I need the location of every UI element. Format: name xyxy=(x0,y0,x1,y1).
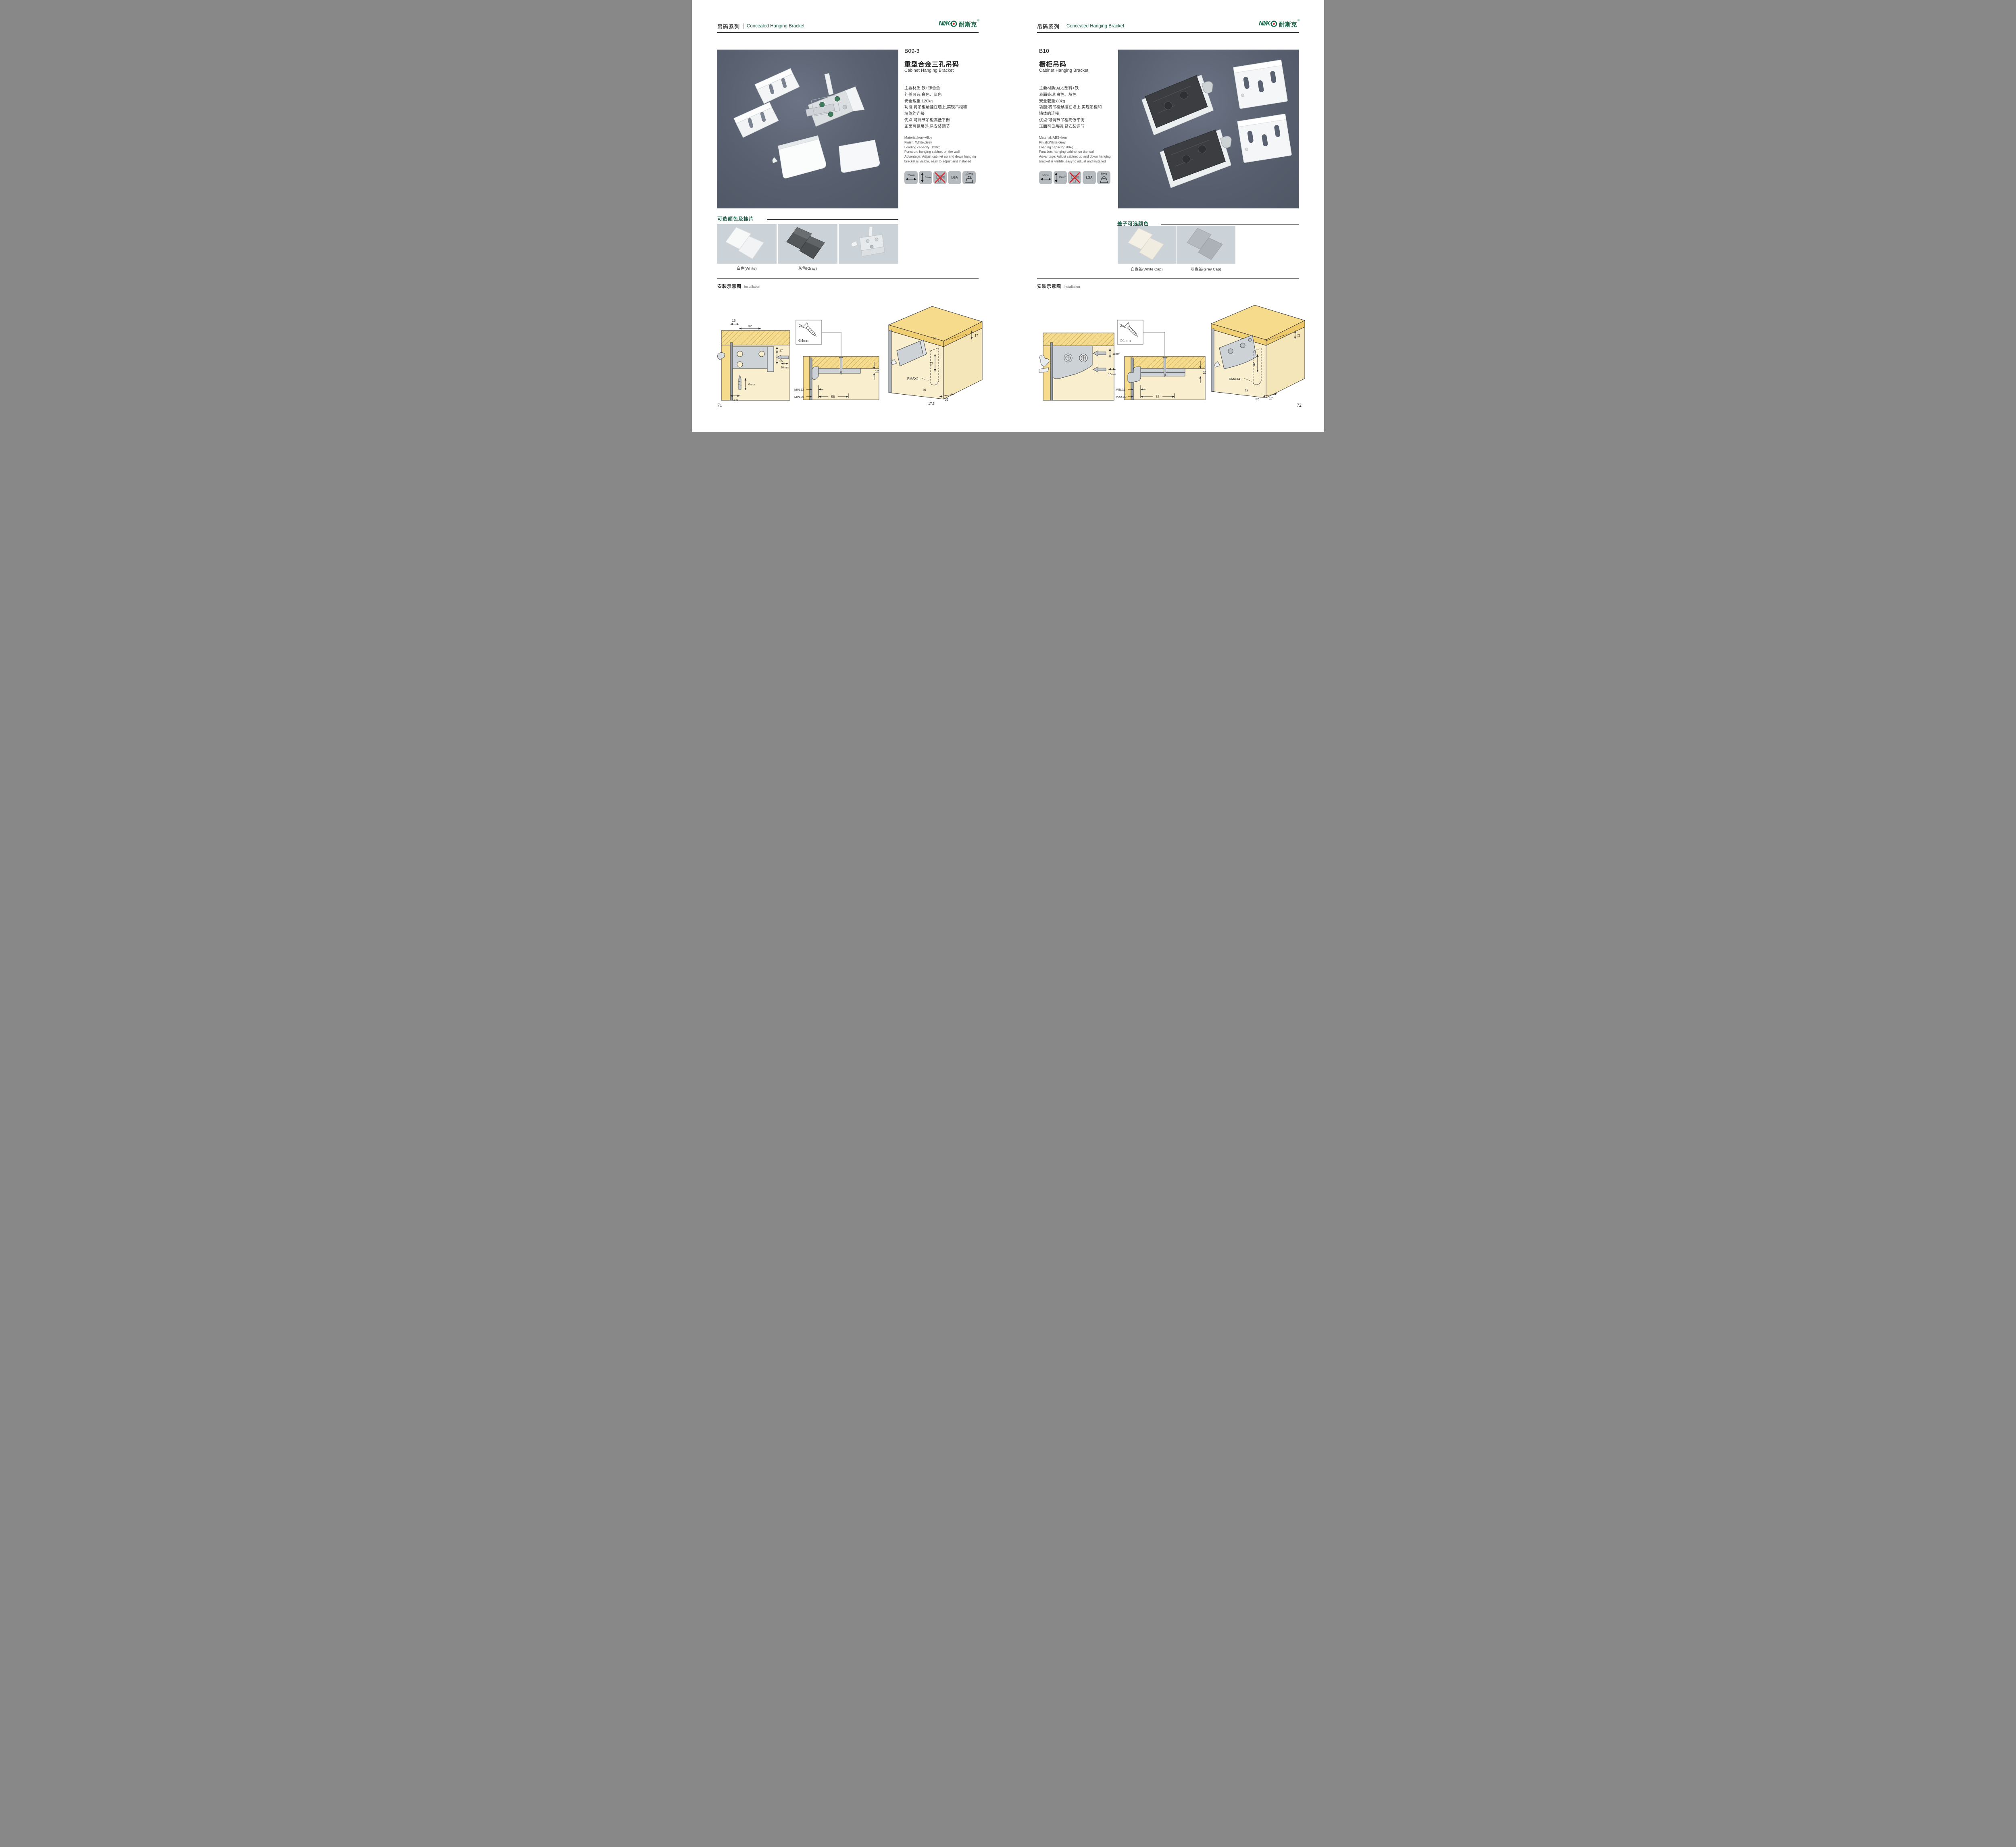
dim-label: 12 xyxy=(875,369,879,373)
dim-label: RMAX4 xyxy=(1229,377,1240,381)
dim-label: 17 xyxy=(1269,397,1273,400)
product-photo-b10-art xyxy=(1118,50,1299,208)
logo-cn-text: 耐斯克 xyxy=(1279,20,1297,29)
badge-cert: LGA xyxy=(1083,171,1096,184)
colors-section-title-left: 可选颜色及挂片 xyxy=(717,215,754,222)
badge-cert-label: LGA xyxy=(1086,176,1092,179)
weight-icon xyxy=(964,176,974,183)
spec-line: 墙体的连接 xyxy=(1039,111,1102,117)
dim-label: RMAX4 xyxy=(907,377,918,381)
header-rule-left xyxy=(717,32,979,33)
swatch-white-cap xyxy=(1118,226,1176,264)
screw-qty-label: 2x xyxy=(799,324,803,328)
dim-label: MAX.30 xyxy=(1116,395,1127,399)
dim-label: 13 xyxy=(1297,334,1301,337)
swatch-white-cap-art xyxy=(1118,226,1176,264)
horizontal-arrow-icon xyxy=(906,177,916,181)
dim-label: MIN.35 xyxy=(794,395,804,399)
badge-no-drill-icon xyxy=(1068,171,1081,184)
spec-line: Advantage: Adjust cabinet up and down ha… xyxy=(1039,154,1111,159)
badge-load-icon: 80Kg xyxy=(1097,171,1110,184)
brand-logo: NI/K 耐斯克 ® xyxy=(939,20,979,29)
badge-load-label: 120Kg xyxy=(965,173,973,176)
swatch-metal-bracket xyxy=(839,224,898,264)
logo-latin-text: NI/K xyxy=(1259,20,1270,27)
installation-diagram-right-3: 13 42 RMAX4 19 32 17 xyxy=(1206,296,1309,407)
dim-label: 32 xyxy=(945,398,949,401)
dim-label: 16 xyxy=(732,319,736,322)
colors-section-rule-left xyxy=(767,219,898,220)
product-photo-b09 xyxy=(717,50,898,208)
installation-title-right: 安装示意图 Installation xyxy=(1037,283,1080,289)
spec-badges: 10mm 15mm xyxy=(1039,171,1110,184)
badge-depth-icon: 15mm xyxy=(1054,171,1067,184)
installation-title-cn: 安装示意图 xyxy=(1037,283,1061,289)
horizontal-arrow-icon xyxy=(1040,177,1051,181)
product-info-b10: B10 橱柜吊码 Cabinet Hanging Bracket 主要材质:AB… xyxy=(1039,48,1118,189)
swatch-gray xyxy=(778,224,837,264)
dim-label: MIN.12 xyxy=(1116,388,1125,391)
swatch-gray-cap-art xyxy=(1177,226,1235,264)
logo-cn-text: 耐斯克 xyxy=(959,20,977,29)
logo-latin-text: NI/K xyxy=(939,20,950,27)
spec-line: 安全载重:120kg xyxy=(904,98,967,105)
dim-label: 17.5 xyxy=(928,402,935,406)
swatch-white xyxy=(717,224,777,264)
spec-line: Finish: White,Grey xyxy=(904,140,976,145)
badge-cert-label: LGA xyxy=(951,176,958,179)
product-code: B09-3 xyxy=(904,48,919,54)
badge-width-label: 20mm xyxy=(907,174,914,177)
screw-dia-label: Φ4mm xyxy=(798,339,809,343)
product-photo-b09-art xyxy=(717,50,898,208)
series-title-en: Concealed Hanging Bracket xyxy=(1066,24,1124,29)
swatch-gray-art xyxy=(778,224,837,264)
dim-label: 42 xyxy=(1252,362,1256,366)
installation-diagram-left-2: 2x Φ4mm 12 MIN.12 MIN.35 58 xyxy=(793,318,883,404)
header-divider xyxy=(1063,23,1063,29)
dim-label: 16 xyxy=(933,337,937,340)
vertical-arrow-icon xyxy=(921,173,924,183)
spec-line: 优点:可调节吊柜高低平衡 xyxy=(904,117,967,124)
product-name-en: Cabinet Hanging Bracket xyxy=(904,68,954,73)
installation-diagram-right-2: 2x Φ4mm 18 MIN.12 MAX.30 67 xyxy=(1115,318,1209,404)
spec-badges: 20mm 6mm xyxy=(904,171,976,184)
spec-line: 安全载重:80kg xyxy=(1039,98,1102,105)
logo-o-icon xyxy=(950,20,957,27)
catalog-spread: 吊码系列 Concealed Hanging Bracket NI/K 耐斯克 … xyxy=(692,0,1324,432)
installation-title-cn: 安装示意图 xyxy=(717,283,741,289)
header-rule-right xyxy=(1037,32,1299,33)
dim-label: 16 xyxy=(923,388,926,392)
badge-cert: LGA xyxy=(948,171,961,184)
product-name-cn: 橱柜吊码 xyxy=(1039,59,1066,69)
spec-line: 墙体的连接 xyxy=(904,111,967,117)
spec-line: 主要材质:铁+锌合金 xyxy=(904,85,967,92)
logo-o-icon xyxy=(1270,20,1277,27)
installation-title-en: Installation xyxy=(1064,285,1080,289)
spec-line: 正面可见吊码,易安装调节 xyxy=(1039,124,1102,130)
badge-load-icon: 120Kg xyxy=(962,171,976,184)
screw-qty-label: 2x xyxy=(1120,324,1124,328)
installation-diagram-left-3: 16 17 42 RMAX4 16 32 17.5 xyxy=(883,299,987,407)
spec-line: 功能:将吊柜悬挂在墙上,实现吊柜和 xyxy=(1039,104,1102,111)
brand-logo: NI/K 耐斯克 ® xyxy=(1259,20,1300,29)
page-number-left: 71 xyxy=(717,402,722,408)
dim-label: 17.5 xyxy=(732,398,738,402)
dim-label: 32 xyxy=(1256,397,1259,401)
specs-en: Material: ABS+iron Finish:White,Grey Loa… xyxy=(1039,135,1111,164)
colors-section-rule-right xyxy=(1161,224,1299,225)
dim-label: 17 xyxy=(975,334,978,337)
installation-diagram-right-1: 15mm 10mm xyxy=(1037,318,1121,404)
series-title-cn: 吊码系列 xyxy=(1037,23,1060,30)
spec-line: 优点:可调节吊柜高低平衡 xyxy=(1039,117,1102,124)
spec-line: Finish:White,Grey xyxy=(1039,140,1111,145)
no-drill-icon xyxy=(1068,171,1081,184)
dim-label: 19 xyxy=(1245,389,1249,392)
dim-label: 42 xyxy=(930,362,933,365)
badge-width-label: 10mm xyxy=(1042,174,1049,177)
logo-reg-mark: ® xyxy=(977,19,979,22)
spec-line: Function: hanging cabinet on the wall xyxy=(904,150,976,154)
installation-diagram-left-1: 16 32 6mm 17 25 20mm 17.5 xyxy=(716,318,793,404)
spec-line: bracket is visible, easy to adjust and i… xyxy=(1039,159,1111,164)
installation-rule-right xyxy=(1037,278,1299,279)
badge-load-label: 80Kg xyxy=(1101,173,1107,176)
badge-no-drill-icon xyxy=(933,171,947,184)
spec-line: 外盖可选:白色、灰色 xyxy=(904,92,967,98)
dim-label: 20mm xyxy=(781,366,789,369)
logo-reg-mark: ® xyxy=(1297,19,1300,22)
spec-line: Material:Iron+Alloy xyxy=(904,135,976,140)
dim-label: MIN.12 xyxy=(794,388,804,391)
spec-line: Loading capacity: 80kg xyxy=(1039,145,1111,150)
dim-label: 67 xyxy=(1156,395,1160,399)
screw-dia-label: Φ4mm xyxy=(1120,339,1131,343)
spec-line: 正面可见吊码,易安装调节 xyxy=(904,124,967,130)
badge-width-icon: 10mm xyxy=(1039,171,1052,184)
spec-line: 表面处理:白色、灰色 xyxy=(1039,92,1102,98)
header-divider xyxy=(743,23,744,29)
weight-icon xyxy=(1099,176,1109,183)
product-name-cn: 重型合金三孔吊码 xyxy=(904,59,959,69)
swatch-metal-bracket-art xyxy=(839,224,898,264)
spec-line: Advantage: Adjust cabinet up and down ha… xyxy=(904,154,976,159)
installation-rule-left xyxy=(717,278,979,279)
installation-title-en: Installation xyxy=(744,285,760,289)
spec-line: Function: hanging cabinet on the wall xyxy=(1039,150,1111,154)
product-info-b09: B09-3 重型合金三孔吊码 Cabinet Hanging Bracket 主… xyxy=(904,48,983,189)
swatch-gray-label: 灰色(Gray) xyxy=(778,265,837,271)
dim-label: 6mm xyxy=(748,383,755,386)
spec-line: 功能:将吊柜悬挂在墙上,实现吊柜和 xyxy=(904,104,967,111)
badge-depth-label: 6mm xyxy=(925,176,931,179)
swatch-white-cap-label: 白色盖(White Cap) xyxy=(1118,266,1176,272)
swatch-gray-cap-label: 灰色盖(Gray Cap) xyxy=(1177,266,1235,272)
product-photo-b10 xyxy=(1118,50,1299,208)
badge-width-icon: 20mm xyxy=(904,171,918,184)
dim-label: 32 xyxy=(748,324,752,328)
series-title-cn: 吊码系列 xyxy=(717,23,740,30)
badge-depth-label: 15mm xyxy=(1059,176,1066,179)
series-title-en: Concealed Hanging Bracket xyxy=(747,24,804,29)
product-name-en: Cabinet Hanging Bracket xyxy=(1039,68,1088,73)
spec-line: 主要材质:ABS塑料+铁 xyxy=(1039,85,1102,92)
spec-line: Loading capacity: 120kg xyxy=(904,145,976,150)
no-drill-icon xyxy=(933,171,947,184)
spec-line: bracket is visible, easy to adjust and i… xyxy=(904,159,976,164)
page-number-right: 72 xyxy=(1289,402,1302,408)
spec-line: Material: ABS+iron xyxy=(1039,135,1111,140)
vertical-arrow-icon xyxy=(1054,173,1058,183)
specs-cn: 主要材质:铁+锌合金 外盖可选:白色、灰色 安全载重:120kg 功能:将吊柜悬… xyxy=(904,85,967,130)
swatch-white-art xyxy=(717,224,777,264)
badge-depth-icon: 6mm xyxy=(919,171,932,184)
specs-en: Material:Iron+Alloy Finish: White,Grey L… xyxy=(904,135,976,164)
specs-cn: 主要材质:ABS塑料+铁 表面处理:白色、灰色 安全载重:80kg 功能:将吊柜… xyxy=(1039,85,1102,130)
product-code: B10 xyxy=(1039,48,1049,54)
installation-title-left: 安装示意图 Installation xyxy=(717,283,760,289)
dim-label: 17 xyxy=(779,349,783,352)
dim-label: 58 xyxy=(831,395,835,399)
swatch-white-label: 白色(White) xyxy=(717,265,777,271)
swatch-gray-cap xyxy=(1177,226,1235,264)
